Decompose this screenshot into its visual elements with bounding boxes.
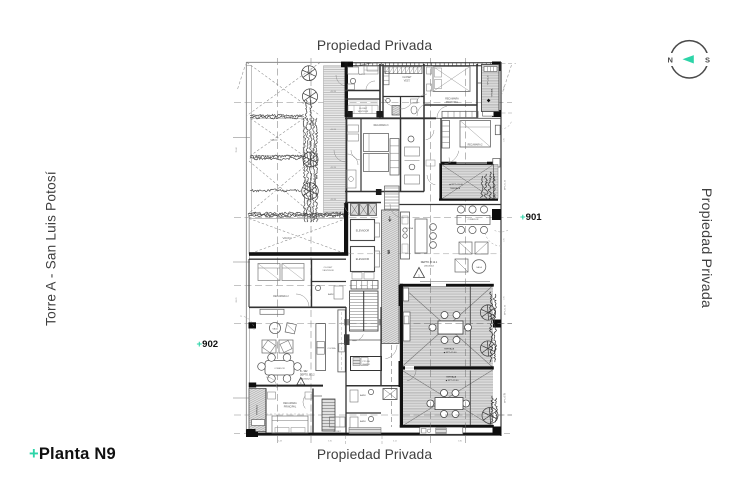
svg-text:COCINA: COCINA (327, 347, 336, 350)
svg-text:◆ NPT+21.00: ◆ NPT+21.00 (444, 351, 458, 354)
svg-text:TERRAZA: TERRAZA (256, 405, 259, 415)
svg-text:NPT+34.30: NPT+34.30 (488, 75, 490, 84)
svg-text:35.48: 35.48 (236, 147, 238, 153)
svg-text:+34.30: +34.30 (330, 199, 336, 201)
svg-text:CTO DE: CTO DE (362, 361, 370, 363)
svg-text:22.76: 22.76 (236, 297, 238, 303)
svg-text:+34.30: +34.30 (330, 91, 336, 93)
svg-text:+34.30: +34.30 (330, 129, 336, 131)
svg-text:RECAMARA 2: RECAMARA 2 (273, 295, 289, 298)
svg-text:◆ NPT+31.40: ◆ NPT+31.40 (449, 183, 463, 186)
svg-text:1: 1 (418, 273, 420, 277)
svg-text:5.80: 5.80 (458, 441, 462, 443)
svg-text:BAÑO: BAÑO (328, 293, 334, 296)
svg-text:3.35: 3.35 (328, 441, 332, 443)
svg-text:VACIO: VACIO (282, 236, 292, 240)
svg-text:205.06m2: 205.06m2 (424, 266, 435, 268)
svg-text:SALA: SALA (272, 328, 278, 331)
svg-text:◆ NPT+31.60: ◆ NPT+31.60 (446, 379, 460, 382)
svg-text:NPT+31.40: NPT+31.40 (505, 179, 507, 190)
svg-text:+34.30: +34.30 (330, 167, 336, 169)
svg-text:6.12: 6.12 (393, 441, 397, 443)
svg-text:COMEDOR: COMEDOR (274, 368, 285, 370)
svg-text:NPT+31.60: NPT+31.60 (505, 304, 507, 315)
svg-text:2.80: 2.80 (504, 393, 506, 397)
svg-text:VEST.: VEST. (404, 80, 411, 82)
svg-text:N9: N9 (387, 250, 391, 254)
svg-text:2.80: 2.80 (504, 296, 506, 300)
svg-text:SALA: SALA (476, 266, 482, 269)
svg-text:BAÑO: BAÑO (359, 73, 365, 76)
svg-text:TERRAZA: TERRAZA (446, 376, 457, 379)
svg-text:ELEVADOR: ELEVADOR (356, 258, 370, 261)
svg-text:CLOSET: CLOSET (324, 267, 333, 269)
svg-text:PRINCIPAL: PRINCIPAL (284, 406, 297, 409)
svg-text:TERRAZA: TERRAZA (450, 187, 461, 190)
svg-text:VESTIDOR: VESTIDOR (358, 111, 369, 113)
svg-text:2.80: 2.80 (504, 138, 506, 142)
svg-text:ELEVADOR: ELEVADOR (356, 230, 370, 233)
svg-text:BAÑO: BAÑO (360, 420, 366, 423)
svg-text:PRINCIPAL: PRINCIPAL (446, 101, 459, 104)
svg-text:COMEDOR: COMEDOR (468, 219, 479, 221)
svg-text:CLOSET: CLOSET (333, 431, 341, 433)
svg-text:COCINA: COCINA (405, 227, 414, 230)
svg-text:TERRAZA: TERRAZA (444, 348, 455, 351)
svg-text:2.80: 2.80 (504, 238, 506, 242)
svg-text:VACIO: VACIO (270, 139, 277, 142)
svg-text:BAÑO: BAÑO (360, 394, 366, 397)
svg-text:DEPTO. B 12.1: DEPTO. B 12.1 (421, 261, 438, 264)
svg-text:CLOSET: CLOSET (402, 77, 412, 79)
svg-text:CLOSET: CLOSET (359, 108, 368, 110)
svg-text:RECAMARA 2: RECAMARA 2 (468, 144, 484, 147)
svg-text:2.80: 2.80 (504, 86, 506, 90)
svg-text:RECAMARA 3: RECAMARA 3 (374, 124, 390, 127)
svg-text:VESTIDOR: VESTIDOR (322, 270, 334, 272)
svg-text:5.43: 5.43 (278, 441, 282, 443)
svg-text:B - 902: B - 902 (300, 371, 308, 373)
svg-text:DEPTO. B 1.2: DEPTO. B 1.2 (300, 375, 315, 377)
svg-text:TERRAZA: TERRAZA (491, 88, 494, 97)
